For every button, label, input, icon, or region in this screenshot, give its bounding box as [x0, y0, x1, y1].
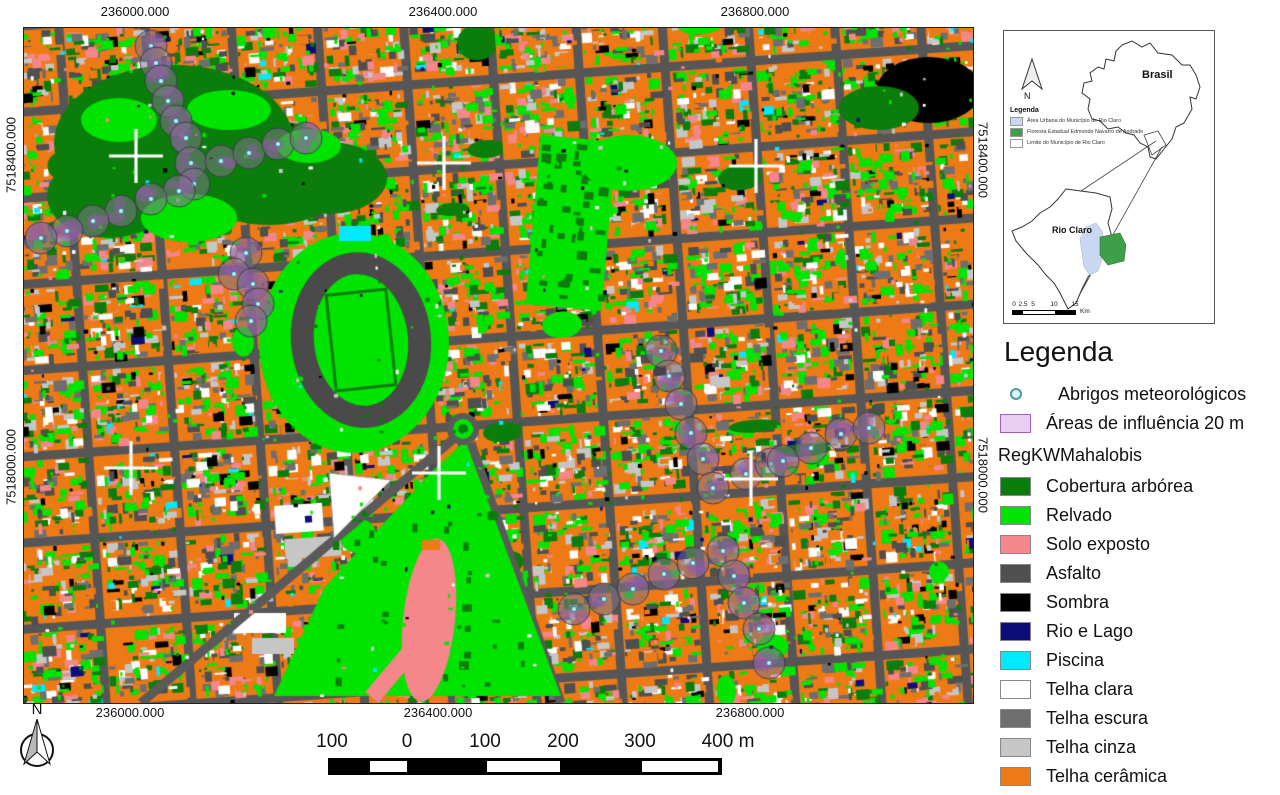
- main-map: [23, 27, 974, 704]
- inset-country-label: Brasil: [1142, 69, 1173, 81]
- legend-class-row: Asfalto: [1000, 563, 1276, 583]
- influence-area-swatch: [1000, 414, 1031, 433]
- shelter-point-icon: [1010, 388, 1022, 400]
- inset-scale-seg: [1023, 311, 1034, 314]
- legend-panel: Legenda Abrigos meteorológicos Áreas de …: [998, 336, 1276, 795]
- inset-map-graphic: [1004, 31, 1214, 323]
- legend-class-label: Telha clara: [1046, 679, 1133, 700]
- legend-class-row: Telha cerâmica: [1000, 766, 1276, 786]
- legend-class-swatch: [1000, 738, 1031, 757]
- legend-class-swatch: [1000, 564, 1031, 583]
- legend-item-label: Áreas de influência 20 m: [1046, 413, 1244, 434]
- legend-class-label: Sombra: [1046, 592, 1109, 613]
- legend-class-row: Telha cinza: [1000, 737, 1276, 757]
- legend-area-item: Áreas de influência 20 m: [1000, 413, 1276, 433]
- inset-scale-seg: [1034, 311, 1055, 314]
- grid-label-top: 236000.000: [101, 4, 170, 19]
- inset-legend-swatch: [1010, 139, 1023, 148]
- scale-bar-number: 0: [402, 731, 413, 753]
- needle-right: [37, 719, 50, 764]
- grid-label-left: 7518000.000: [4, 429, 19, 505]
- inset-legend: Legenda Área Urbana do Município de Rio …: [1010, 107, 1160, 150]
- legend-class-row: Solo exposto: [1000, 534, 1276, 554]
- inset-scale-number: 10: [1050, 301, 1057, 308]
- legend-class-row: Piscina: [1000, 650, 1276, 670]
- inset-legend-label: Área Urbana do Município de Rio Claro: [1027, 118, 1121, 124]
- inset-scale-number: 15: [1071, 301, 1078, 308]
- legend-class-label: Solo exposto: [1046, 534, 1150, 555]
- legend-class-row: Telha clara: [1000, 679, 1276, 699]
- inset-legend-item: Área Urbana do Município de Rio Claro: [1010, 117, 1160, 126]
- legend-class-swatch: [1000, 593, 1031, 612]
- scale-bar-number: 200: [547, 731, 579, 753]
- legend-title: Legenda: [1004, 336, 1276, 368]
- grid-label-top: 236400.000: [409, 4, 478, 19]
- grid-label-left: 7518400.000: [4, 117, 19, 193]
- legend-class-row: Telha escura: [1000, 708, 1276, 728]
- scale-bar-number: 300: [624, 731, 656, 753]
- inset-legend-swatch: [1010, 128, 1023, 137]
- inset-legend-item: Floresta Estadual Edmundo Navarro de And…: [1010, 128, 1160, 137]
- scale-bar: 1000100200300400 m: [328, 731, 748, 781]
- inset-scale-number: 5: [1031, 301, 1035, 308]
- scale-bar-number: 100: [316, 731, 348, 753]
- legend-class-label: Telha cinza: [1046, 737, 1136, 758]
- legend-class-swatch: [1000, 535, 1031, 554]
- north-arrow-label: N: [32, 701, 43, 718]
- legend-item-label: Abrigos meteorológicos: [1058, 384, 1246, 405]
- legend-class-label: Telha cerâmica: [1046, 766, 1167, 787]
- inset-legend-title: Legenda: [1010, 107, 1160, 114]
- scale-bar-segment: [487, 761, 560, 772]
- inset-scale-number: 2.5: [1018, 301, 1027, 308]
- inset-legend-swatch: [1010, 117, 1023, 126]
- inset-scale-bar: 02.551015 Km: [1012, 301, 1122, 317]
- inset-scale-seg: [1055, 311, 1076, 314]
- grid-label-bottom: 236400.000: [404, 705, 473, 720]
- legend-class-swatch: [1000, 506, 1031, 525]
- legend-class-label: Asfalto: [1046, 563, 1101, 584]
- legend-class-swatch: [1000, 680, 1031, 699]
- inset-scale-unit: Km: [1080, 308, 1090, 315]
- scale-bar-segment: [370, 761, 407, 772]
- grid-label-right: 7518400.000: [976, 122, 991, 198]
- legend-class-row: Cobertura arbórea: [1000, 476, 1276, 496]
- legend-class-row: Relvado: [1000, 505, 1276, 525]
- legend-class-row: Sombra: [1000, 592, 1276, 612]
- scale-bar-graphic: [328, 758, 722, 775]
- grid-label-bottom: 236800.000: [716, 705, 785, 720]
- grid-label-right: 7518000.000: [976, 437, 991, 513]
- legend-group-title: RegKWMahalobis: [998, 445, 1276, 466]
- map-layout-page: { "map": { "grid": { "top_labels": ["236…: [0, 0, 1280, 795]
- inset-legend-label: Limite do Município de Rio Claro: [1027, 140, 1105, 146]
- forest-shape: [1100, 233, 1126, 265]
- inset-legend-item: Limite do Município de Rio Claro: [1010, 139, 1160, 148]
- inset-scale-bar-graphic: [1012, 310, 1076, 315]
- scale-bar-number: 100: [469, 731, 501, 753]
- inset-north-label: N: [1024, 91, 1031, 101]
- legend-class-swatch: [1000, 651, 1031, 670]
- classified-raster-map: [24, 28, 973, 703]
- inset-north-arrow-icon: [1022, 59, 1042, 89]
- inset-scale-seg: [1013, 311, 1023, 314]
- scale-bar-number: 400 m: [702, 731, 755, 753]
- scale-bar-segment: [642, 761, 718, 772]
- legend-class-label: Cobertura arbórea: [1046, 476, 1193, 497]
- legend-class-label: Rio e Lago: [1046, 621, 1133, 642]
- needle-left: [24, 719, 37, 764]
- legend-class-swatch: [1000, 622, 1031, 641]
- grid-label-top: 236800.000: [721, 4, 790, 19]
- legend-class-swatch: [1000, 709, 1031, 728]
- legend-class-list: Cobertura arbóreaRelvadoSolo expostoAsfa…: [998, 476, 1276, 786]
- inset-legend-label: Floresta Estadual Edmundo Navarro de And…: [1027, 129, 1143, 135]
- inset-municipality-label: Rio Claro: [1052, 225, 1092, 235]
- inset-locator-map: N Brasil Rio Claro Legenda Área Urbana d…: [1003, 30, 1215, 324]
- legend-class-swatch: [1000, 767, 1031, 786]
- legend-point-item: Abrigos meteorológicos: [1000, 384, 1276, 404]
- legend-class-label: Telha escura: [1046, 708, 1148, 729]
- north-arrow: N: [10, 700, 66, 784]
- legend-class-label: Piscina: [1046, 650, 1104, 671]
- grid-label-bottom: 236000.000: [96, 705, 165, 720]
- legend-class-label: Relvado: [1046, 505, 1112, 526]
- inset-scale-number: 0: [1012, 301, 1016, 308]
- legend-class-swatch: [1000, 477, 1031, 496]
- legend-class-row: Rio e Lago: [1000, 621, 1276, 641]
